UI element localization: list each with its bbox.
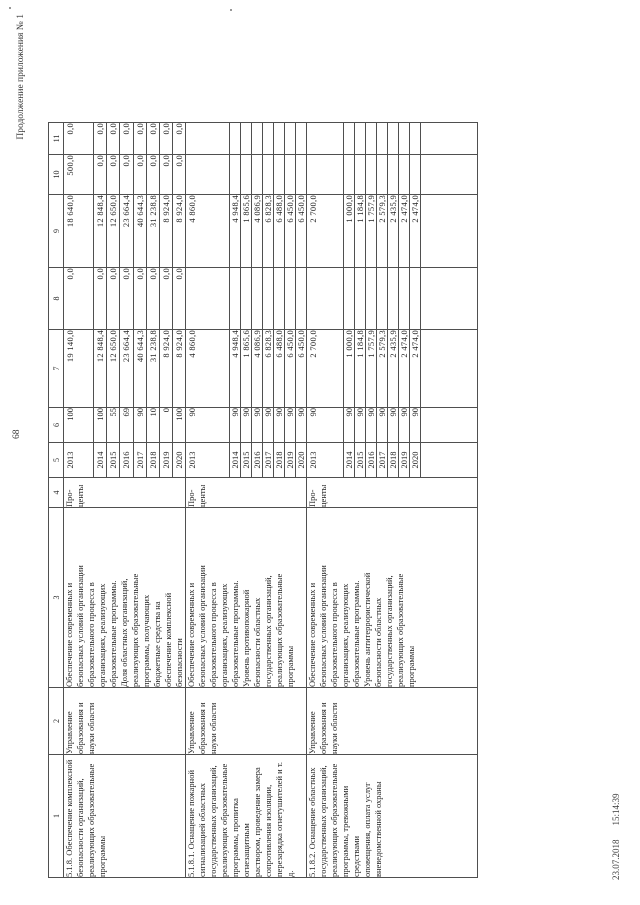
value-cell: 6 450,0	[285, 330, 296, 408]
value-cell	[186, 155, 230, 195]
value-cell	[296, 123, 307, 155]
value-cell: 40 644,3	[133, 195, 146, 268]
value-cell: 4 948,4	[230, 330, 241, 408]
value-cell: 6 450,0	[296, 195, 307, 268]
value-cell: 8 924,0	[172, 330, 185, 408]
col-number-cell: 10	[49, 155, 64, 195]
value-cell: 0,0	[64, 268, 94, 330]
value-cell: 0,0	[133, 268, 146, 330]
value-cell	[252, 155, 263, 195]
value-cell	[344, 155, 355, 195]
col-number-cell: 8	[49, 268, 64, 330]
value-cell: 1 184,8	[355, 330, 366, 408]
percent-cell: 90	[399, 408, 410, 443]
value-cell: 500,0	[64, 155, 94, 195]
value-cell: 31 238,8	[146, 330, 159, 408]
table-row: 5.1.8.2. Оснащение областных государстве…	[307, 123, 344, 878]
unit-cell: Про- центы	[64, 478, 186, 508]
value-cell: 0,0	[120, 123, 133, 155]
print-timestamp: 23.07.201815:14:39	[611, 793, 621, 880]
value-cell: 0,0	[64, 123, 94, 155]
value-cell	[230, 268, 241, 330]
year-cell: 2013	[307, 443, 344, 478]
value-cell	[388, 123, 399, 155]
year-cell: 2018	[274, 443, 285, 478]
rotated-page-content: Продолжение приложения № 1 68 23.07.2018…	[0, 0, 640, 905]
value-cell	[377, 123, 388, 155]
value-cell	[355, 155, 366, 195]
percent-cell: 90	[241, 408, 252, 443]
value-cell: 1 000,0	[344, 330, 355, 408]
value-cell	[230, 155, 241, 195]
value-cell: 2 700,0	[307, 195, 344, 268]
col-number-cell: 5	[49, 443, 64, 478]
empty-cell	[421, 408, 478, 443]
value-cell: 2 474,0	[399, 195, 410, 268]
empty-cell	[421, 443, 478, 478]
value-cell: 4 948,4	[230, 195, 241, 268]
indicator-cell: Обеспечение современных и безопасных усл…	[64, 508, 186, 688]
percent-cell: 69	[120, 408, 133, 443]
year-cell: 2013	[64, 443, 94, 478]
year-cell: 2017	[377, 443, 388, 478]
value-cell	[285, 123, 296, 155]
value-cell: 0,0	[133, 155, 146, 195]
year-cell: 2015	[241, 443, 252, 478]
year-cell: 2013	[186, 443, 230, 478]
col-number-cell: 3	[49, 508, 64, 688]
year-cell: 2018	[388, 443, 399, 478]
year-cell: 2016	[366, 443, 377, 478]
value-cell	[388, 155, 399, 195]
percent-cell: 90	[285, 408, 296, 443]
percent-cell: 90	[355, 408, 366, 443]
empty-cell	[421, 123, 478, 155]
appendix-note: Продолжение приложения № 1	[16, 14, 26, 140]
empty-cell	[421, 195, 478, 268]
value-cell: 18 640,0	[64, 195, 94, 268]
value-cell: 1 000,0	[344, 195, 355, 268]
value-cell	[252, 268, 263, 330]
unit-cell: Про- центы	[186, 478, 307, 508]
indicator-cell: Обеспечение современных и безопасных усл…	[186, 508, 307, 688]
value-cell	[274, 155, 285, 195]
col-number-cell: 6	[49, 408, 64, 443]
value-cell	[410, 155, 421, 195]
value-cell: 6 828,3	[263, 195, 274, 268]
value-cell	[344, 123, 355, 155]
value-cell	[263, 268, 274, 330]
value-cell	[285, 155, 296, 195]
value-cell: 0,0	[107, 268, 120, 330]
col-number-cell: 4	[49, 478, 64, 508]
value-cell: 6 828,3	[263, 330, 274, 408]
print-time: 15:14:39	[611, 793, 621, 825]
percent-cell: 90	[186, 408, 230, 443]
page-number: 68	[12, 430, 22, 440]
value-cell	[274, 268, 285, 330]
percent-cell: 90	[410, 408, 421, 443]
item-cell: 5.1.8.1. Оснащение пожарной сигнализацие…	[186, 755, 307, 878]
year-cell: 2016	[120, 443, 133, 478]
percent-cell: 90	[296, 408, 307, 443]
value-cell: 4 086,9	[252, 195, 263, 268]
executor-cell: Управление образования и науки области	[64, 688, 186, 755]
value-cell	[307, 155, 344, 195]
percent-cell: 90	[377, 408, 388, 443]
percent-cell: 100	[94, 408, 107, 443]
value-cell	[344, 268, 355, 330]
value-cell: 2 435,9	[388, 330, 399, 408]
percent-cell: 90	[366, 408, 377, 443]
value-cell: 4 860,0	[186, 195, 230, 268]
value-cell: 2 474,0	[410, 330, 421, 408]
value-cell	[399, 123, 410, 155]
print-date: 23.07.2018	[611, 840, 621, 881]
year-cell: 2015	[355, 443, 366, 478]
value-cell: 0,0	[146, 268, 159, 330]
value-cell: 1 865,6	[241, 330, 252, 408]
value-cell: 8 924,0	[172, 195, 185, 268]
value-cell: 0,0	[146, 155, 159, 195]
value-cell: 12 848,4	[94, 330, 107, 408]
empty-cell	[421, 268, 478, 330]
value-cell	[355, 268, 366, 330]
value-cell: 0,0	[146, 123, 159, 155]
value-cell	[366, 268, 377, 330]
col-number-cell: 9	[49, 195, 64, 268]
year-cell: 2018	[146, 443, 159, 478]
value-cell: 23 664,4	[120, 195, 133, 268]
value-cell	[366, 155, 377, 195]
value-cell	[263, 155, 274, 195]
value-cell	[355, 123, 366, 155]
header-row: 1 2 3 4 5 6 7 8 9 10 11	[49, 123, 64, 878]
value-cell	[410, 268, 421, 330]
percent-cell: 90	[230, 408, 241, 443]
percent-cell: 90	[274, 408, 285, 443]
empty-cell	[421, 155, 478, 195]
year-cell: 2014	[94, 443, 107, 478]
value-cell: 23 664,4	[120, 330, 133, 408]
value-cell	[399, 268, 410, 330]
value-cell: 6 450,0	[285, 195, 296, 268]
value-cell	[263, 123, 274, 155]
value-cell: 0,0	[107, 155, 120, 195]
value-cell: 19 140,0	[64, 330, 94, 408]
value-cell	[377, 268, 388, 330]
percent-cell: 10	[146, 408, 159, 443]
value-cell: 12 650,0	[107, 195, 120, 268]
percent-cell: 90	[252, 408, 263, 443]
percent-cell: 90	[133, 408, 146, 443]
executor-cell: Управление образования и науки области	[307, 688, 478, 755]
value-cell: 0,0	[94, 155, 107, 195]
value-cell	[410, 123, 421, 155]
item-cell: 5.1.8. Обеспечение комплексной безопасно…	[64, 755, 186, 878]
value-cell	[388, 268, 399, 330]
year-cell: 2020	[172, 443, 185, 478]
percent-cell: 90	[388, 408, 399, 443]
value-cell: 0,0	[159, 123, 172, 155]
year-cell: 2014	[344, 443, 355, 478]
percent-cell: 55	[107, 408, 120, 443]
value-cell: 0,0	[159, 155, 172, 195]
year-cell: 2016	[252, 443, 263, 478]
value-cell: 8 924,0	[159, 330, 172, 408]
col-number-cell: 2	[49, 688, 64, 755]
value-cell: 40 644,3	[133, 330, 146, 408]
value-cell	[230, 123, 241, 155]
value-cell: 0,0	[172, 268, 185, 330]
year-cell: 2019	[399, 443, 410, 478]
percent-cell: 90	[307, 408, 344, 443]
value-cell: 1 865,6	[241, 195, 252, 268]
indicator-cell: Обеспечение современных и безопасных усл…	[307, 508, 478, 688]
col-number-cell: 7	[49, 330, 64, 408]
value-cell	[285, 268, 296, 330]
value-cell: 4 860,0	[186, 330, 230, 408]
percent-cell: 0	[159, 408, 172, 443]
executor-cell: Управление образования и науки области	[186, 688, 307, 755]
value-cell: 2 435,9	[388, 195, 399, 268]
scanned-page: Продолжение приложения № 1 68 23.07.2018…	[0, 0, 640, 905]
value-cell	[186, 268, 230, 330]
value-cell	[296, 268, 307, 330]
value-cell	[307, 268, 344, 330]
value-cell: 12 650,0	[107, 330, 120, 408]
empty-cell	[421, 330, 478, 408]
year-cell: 2019	[285, 443, 296, 478]
percent-cell: 90	[344, 408, 355, 443]
value-cell	[274, 123, 285, 155]
percent-cell: 100	[172, 408, 185, 443]
value-cell	[241, 123, 252, 155]
value-cell: 2 700,0	[307, 330, 344, 408]
col-number-cell: 11	[49, 123, 64, 155]
year-cell: 2017	[133, 443, 146, 478]
value-cell: 2 579,3	[377, 330, 388, 408]
value-cell: 0,0	[159, 268, 172, 330]
value-cell	[241, 155, 252, 195]
value-cell: 31 238,8	[146, 195, 159, 268]
year-cell: 2019	[159, 443, 172, 478]
item-cell: 5.1.8.2. Оснащение областных государстве…	[307, 755, 478, 878]
value-cell: 0,0	[120, 268, 133, 330]
value-cell	[252, 123, 263, 155]
value-cell	[241, 268, 252, 330]
value-cell: 12 848,4	[94, 195, 107, 268]
value-cell: 1 184,8	[355, 195, 366, 268]
value-cell	[186, 123, 230, 155]
value-cell	[377, 155, 388, 195]
year-cell: 2015	[107, 443, 120, 478]
year-cell: 2017	[263, 443, 274, 478]
table-row: 5.1.8. Обеспечение комплексной безопасно…	[64, 123, 94, 878]
percent-cell: 100	[64, 408, 94, 443]
value-cell: 4 086,9	[252, 330, 263, 408]
value-cell: 6 450,0	[296, 330, 307, 408]
value-cell: 0,0	[172, 155, 185, 195]
col-number-cell: 1	[49, 755, 64, 878]
table-row: 5.1.8.1. Оснащение пожарной сигнализацие…	[186, 123, 230, 878]
value-cell: 0,0	[107, 123, 120, 155]
value-cell: 2 474,0	[399, 330, 410, 408]
value-cell: 0,0	[172, 123, 185, 155]
year-cell: 2020	[410, 443, 421, 478]
unit-cell: Про- центы	[307, 478, 478, 508]
year-cell: 2020	[296, 443, 307, 478]
value-cell	[366, 123, 377, 155]
results-table: 1 2 3 4 5 6 7 8 9 10 11 5.1.8. Обеспечен…	[48, 122, 478, 878]
value-cell: 6 488,0	[274, 330, 285, 408]
value-cell: 1 757,9	[366, 195, 377, 268]
value-cell: 0,0	[120, 155, 133, 195]
value-cell	[296, 155, 307, 195]
value-cell: 2 474,0	[410, 195, 421, 268]
value-cell: 1 757,9	[366, 330, 377, 408]
value-cell	[307, 123, 344, 155]
percent-cell: 90	[263, 408, 274, 443]
value-cell: 2 579,3	[377, 195, 388, 268]
value-cell: 0,0	[94, 123, 107, 155]
value-cell	[399, 155, 410, 195]
value-cell: 0,0	[94, 268, 107, 330]
value-cell: 0,0	[133, 123, 146, 155]
value-cell: 8 924,0	[159, 195, 172, 268]
value-cell: 6 488,0	[274, 195, 285, 268]
year-cell: 2014	[230, 443, 241, 478]
